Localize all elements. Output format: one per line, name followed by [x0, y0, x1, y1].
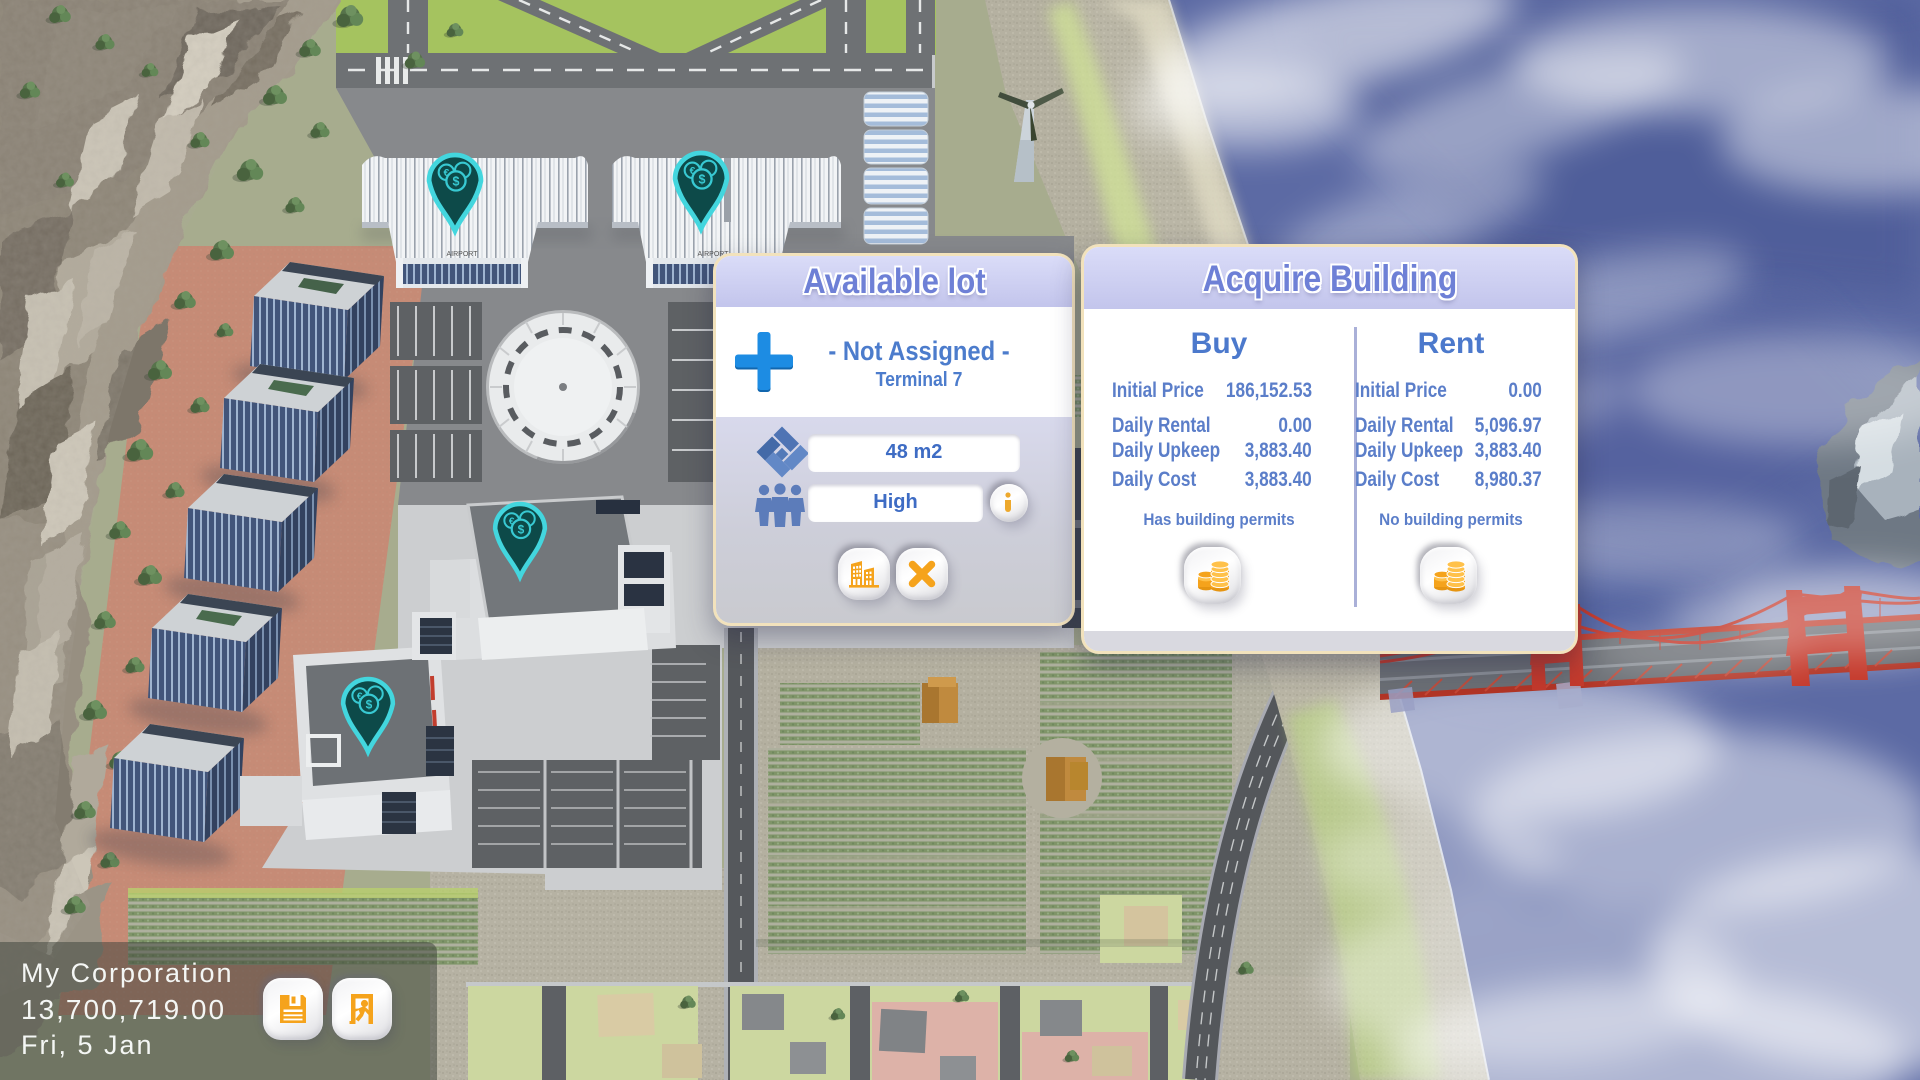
- svg-text:AIRPORT: AIRPORT: [447, 251, 479, 258]
